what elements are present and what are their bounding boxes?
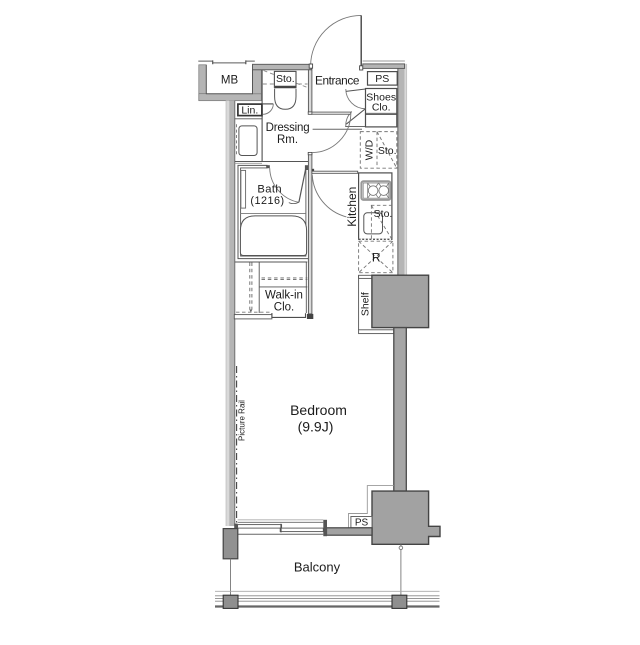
svg-text:Sto.: Sto. bbox=[276, 73, 295, 85]
svg-text:Balcony: Balcony bbox=[294, 560, 341, 575]
svg-text:Sto.: Sto. bbox=[378, 145, 397, 157]
svg-text:R: R bbox=[372, 251, 381, 265]
svg-text:PS: PS bbox=[375, 73, 389, 85]
svg-text:Clo.: Clo. bbox=[274, 302, 294, 314]
svg-text:Lin.: Lin. bbox=[241, 105, 258, 117]
svg-text:Sto.: Sto. bbox=[374, 208, 393, 220]
svg-text:Clo.: Clo. bbox=[372, 101, 391, 113]
svg-text:(1216): (1216) bbox=[250, 195, 284, 207]
svg-text:Entrance: Entrance bbox=[315, 74, 360, 88]
svg-text:Bath: Bath bbox=[257, 184, 282, 196]
svg-text:MB: MB bbox=[221, 75, 239, 87]
svg-text:Rm.: Rm. bbox=[277, 134, 298, 146]
svg-text:PS: PS bbox=[355, 518, 369, 529]
svg-text:Bedroom: Bedroom bbox=[290, 402, 347, 418]
svg-text:(9.9J): (9.9J) bbox=[298, 418, 334, 434]
svg-text:Picture Rail: Picture Rail bbox=[237, 400, 246, 441]
svg-text:Kitchen: Kitchen bbox=[345, 187, 359, 227]
svg-text:Dressing: Dressing bbox=[266, 122, 310, 134]
svg-text:Shelf: Shelf bbox=[360, 292, 372, 316]
svg-text:W/D: W/D bbox=[363, 139, 375, 160]
svg-text:Walk-in: Walk-in bbox=[265, 290, 303, 302]
